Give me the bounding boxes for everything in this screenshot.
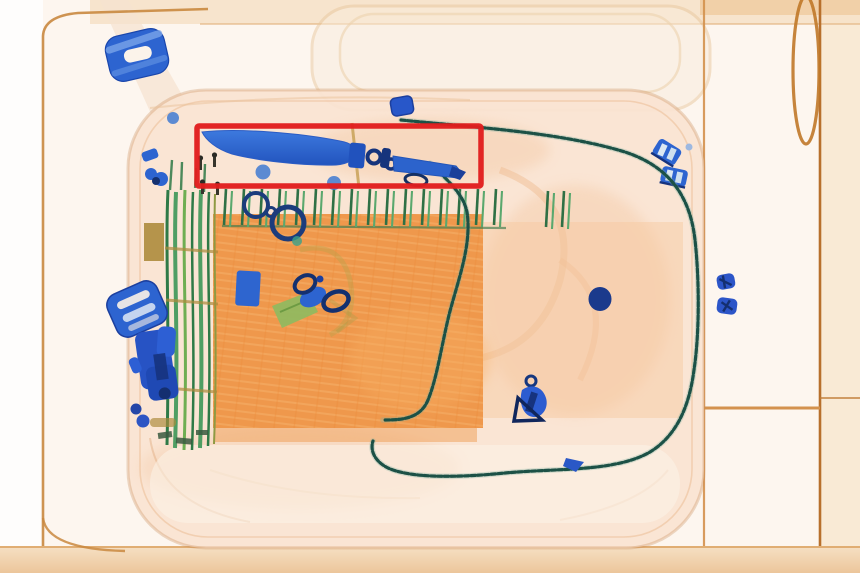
metal-diamond — [390, 95, 415, 117]
metal-disc — [589, 287, 612, 311]
xray-scan-image — [0, 0, 860, 573]
knife-bolster — [348, 142, 366, 168]
metal-plate — [235, 270, 261, 306]
xray-scene — [0, 0, 860, 573]
olive-plate — [144, 223, 164, 261]
